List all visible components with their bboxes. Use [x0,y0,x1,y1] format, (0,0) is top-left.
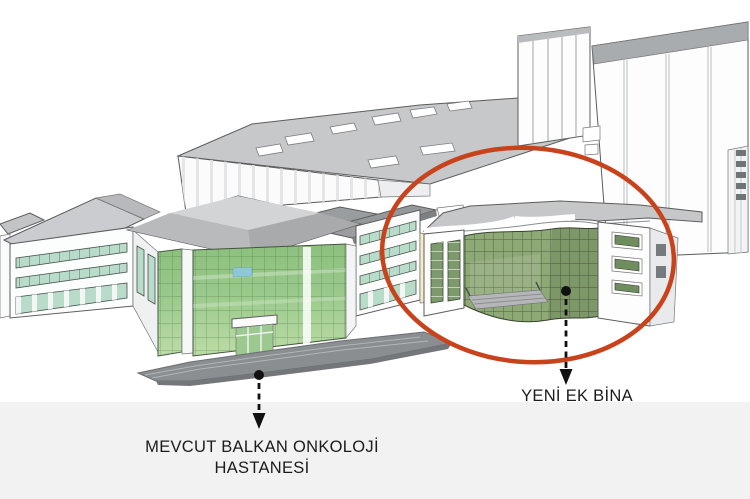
existing-hospital-label-line1: MEVCUT BALKAN ONKOLOJİ [92,437,432,458]
architectural-rendering: MEVCUT BALKAN ONKOLOJİ HASTANESİ YENİ EK… [0,0,750,499]
scene-canvas [0,0,750,499]
annex-tower-windows [612,232,642,296]
existing-hospital-label: MEVCUT BALKAN ONKOLOJİ HASTANESİ [92,437,432,479]
facade-sign [233,267,252,277]
existing-hospital-label-line2: HASTANESİ [92,458,432,479]
new-annex-label: YENİ EK BİNA [467,386,687,407]
